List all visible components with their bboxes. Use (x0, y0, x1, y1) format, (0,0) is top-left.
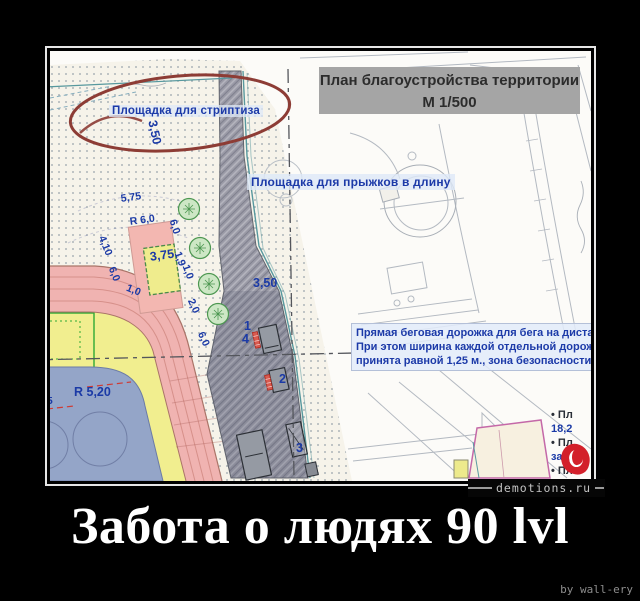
author-credit: by wall-ery (560, 583, 633, 596)
photo-frame: План благоустройства территории М 1/500 … (45, 46, 596, 486)
plan-title-box: План благоустройства территории М 1/500 (319, 67, 580, 114)
note-line: Прямая беговая дорожка для бега на диста (356, 326, 591, 340)
striptiz-area-label: Площадка для стриптиза (109, 105, 263, 117)
watermark-bar: demotions.ru (468, 479, 605, 497)
legend-line: • Пл (551, 408, 591, 422)
caption-title: Забота о людях 90 lvl (0, 497, 640, 556)
legend-line: 18,2 (551, 422, 591, 436)
long-jump-area-label: Площадка для прыжков в длину (247, 174, 455, 190)
site-plan-image: План благоустройства территории М 1/500 … (50, 51, 591, 481)
note-line: принята равной 1,25 м., зона безопасност… (356, 354, 591, 368)
plan-title-line2: М 1/500 (319, 92, 580, 114)
demotivator-page: План благоустройства территории М 1/500 … (0, 0, 640, 601)
note-line: При этом ширина каждой отдельной дорож (356, 340, 591, 354)
watermark-line (468, 487, 492, 489)
watermark-text: demotions.ru (496, 481, 591, 495)
watermark-line (595, 487, 604, 489)
plan-title-line1: План благоустройства территории (319, 70, 580, 92)
track-note-block: Прямая беговая дорожка для бега на диста… (351, 323, 591, 371)
